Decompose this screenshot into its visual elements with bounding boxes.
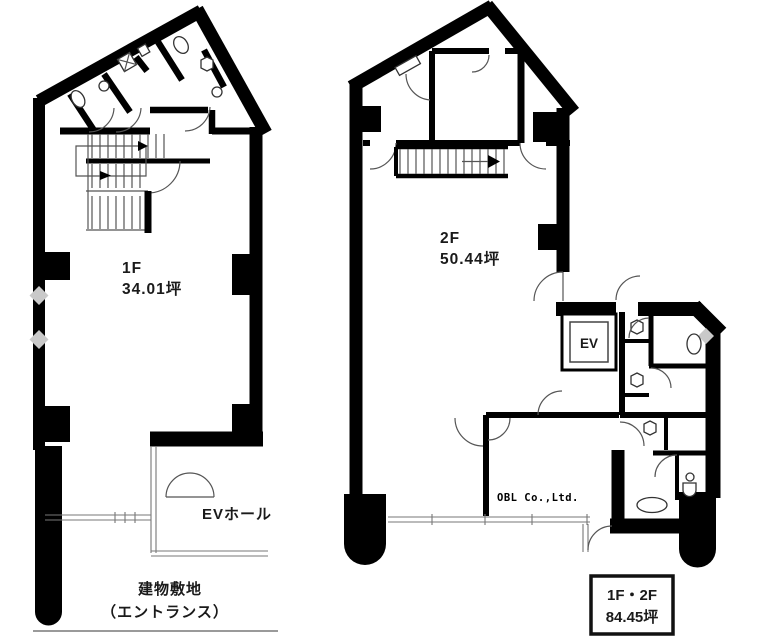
toilet-fixture (644, 421, 656, 435)
wall-left-rounded-foot (344, 494, 386, 565)
wall-right-slope (487, 5, 574, 112)
floor-1f-name: 1F (122, 260, 142, 277)
door-arc (488, 418, 510, 440)
top-room-2f (395, 46, 524, 143)
pillar (33, 252, 70, 280)
total-area-box: 1F・2F 84.45坪 (591, 576, 673, 634)
pillar (232, 254, 262, 295)
restroom-annex-2f (620, 312, 706, 513)
sink-fixture (687, 334, 701, 354)
toilet-person-head (686, 473, 694, 481)
floorplan-canvas: 1F 34.01坪 EVホール 建物敷地 （エントランス） (0, 0, 760, 636)
window-lines (583, 524, 588, 552)
floor-plan-1f: 1F 34.01坪 EVホール 建物敷地 （エントランス） (30, 9, 279, 631)
staircase-1f (76, 134, 210, 233)
wall-break-marker (30, 286, 49, 305)
door-arc (406, 74, 430, 100)
door-arc (651, 368, 671, 388)
sink-fixture (99, 81, 109, 91)
floor-2f-area: 50.44坪 (440, 250, 500, 268)
door-gap (489, 46, 505, 55)
floor-plan-2f: 2F 50.44坪 EV (344, 5, 721, 568)
wall-left-lower-bar (35, 446, 62, 626)
floor-1f-area: 34.01坪 (122, 280, 182, 298)
floor-2f-name: 2F (440, 230, 460, 247)
stair-direction-arrow (488, 155, 500, 168)
ev-hall-label: EVホール (202, 506, 272, 523)
door-arc (472, 55, 489, 72)
bathtub-fixture (637, 498, 667, 513)
door-arc (455, 418, 483, 446)
elevator-2f: EV (562, 314, 616, 370)
pillar (538, 224, 564, 250)
door-arc (538, 391, 562, 415)
pillar (533, 112, 559, 142)
toilet-person-body (683, 483, 696, 497)
partition (104, 74, 130, 112)
ev-hall-walls (151, 446, 268, 556)
wall-break-marker (30, 330, 49, 349)
stair-direction-arrow (100, 171, 111, 180)
total-floors: 1F・2F (607, 587, 657, 604)
site-label-line1: 建物敷地 (138, 580, 202, 598)
toilet-fixture (171, 34, 192, 56)
door-arc (148, 161, 180, 193)
door-arc (520, 143, 546, 169)
toilet-fixture (631, 373, 643, 387)
watermark: OBL Co.,Ltd. (497, 492, 579, 504)
wall-left-slope (351, 6, 492, 87)
outer-walls-2f (344, 5, 721, 568)
toilet-fixture (68, 88, 87, 110)
door-arc (370, 143, 396, 169)
door-arc (616, 276, 640, 300)
total-area: 84.45坪 (606, 609, 659, 626)
stair-landing-lines (86, 191, 148, 230)
sink-fixture (212, 87, 222, 97)
elevator-label: EV (580, 336, 598, 351)
pillar (33, 406, 70, 442)
toilet-fixture (201, 57, 213, 71)
entrance-door-arc (166, 473, 214, 497)
windows-2f (388, 514, 612, 552)
door-arc (588, 526, 612, 550)
wall-top-left-diagonal (39, 11, 201, 101)
staircase-2f (396, 147, 508, 176)
pillar (357, 106, 381, 132)
site-label-line2: （エントランス） (101, 603, 229, 621)
partition (136, 57, 147, 71)
door-arc (655, 455, 677, 477)
ev-hall-1f: EVホール (151, 446, 272, 556)
pillar (232, 404, 262, 446)
floorplan-drawing: 1F 34.01坪 EVホール 建物敷地 （エントランス） (0, 0, 760, 636)
stair-treads-lower (92, 196, 140, 229)
door-arc (620, 422, 644, 446)
